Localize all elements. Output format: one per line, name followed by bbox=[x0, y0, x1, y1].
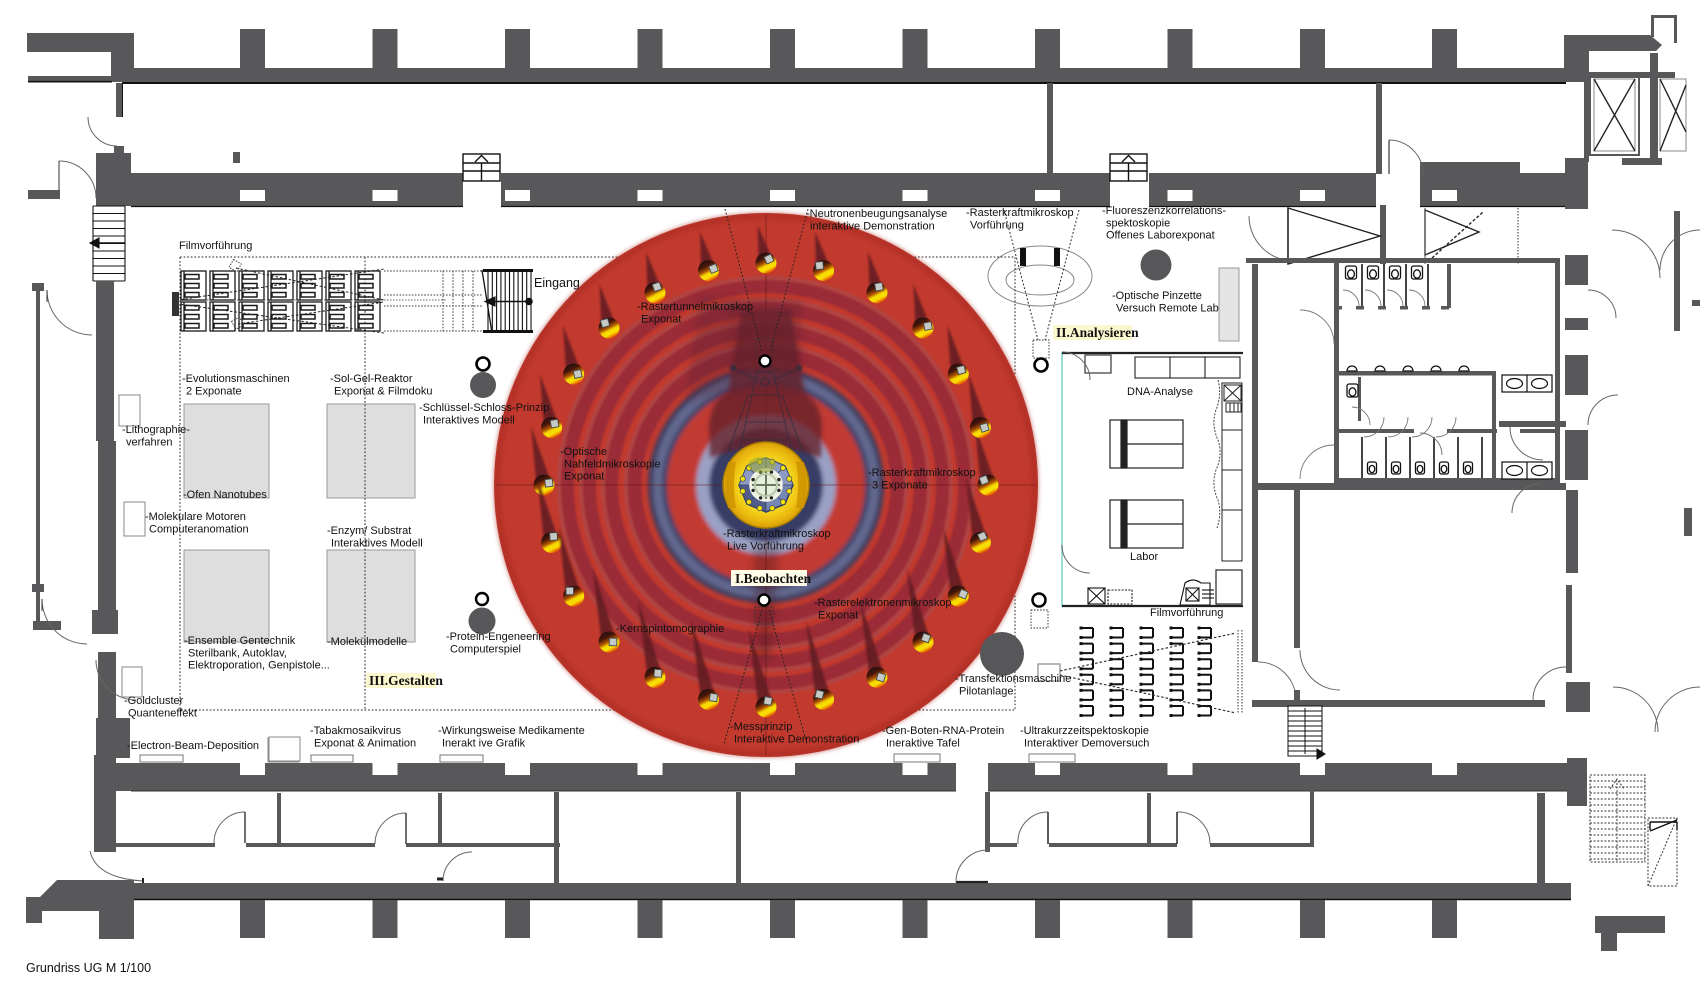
svg-text:Filmvorführung: Filmvorführung bbox=[1150, 607, 1223, 619]
svg-text:-UltrakurzzeitspektoskopieInte: -UltrakurzzeitspektoskopieInteraktiver D… bbox=[1020, 725, 1149, 749]
svg-text:-Ofen Nanotubes: -Ofen Nanotubes bbox=[183, 489, 267, 501]
svg-text:I.Beobachten: I.Beobachten bbox=[735, 571, 812, 586]
svg-text:Labor: Labor bbox=[1130, 551, 1158, 563]
svg-text:-Molekulare MotorenComputerano: -Molekulare MotorenComputeranomation bbox=[145, 511, 249, 535]
svg-text:-Neutronenbeugungsanalyseinter: -Neutronenbeugungsanalyseinteraktive Dem… bbox=[806, 208, 947, 232]
svg-text:II.Analysieren: II.Analysieren bbox=[1056, 325, 1139, 340]
svg-text:-Kernspintomographie: -Kernspintomographie bbox=[616, 623, 724, 635]
svg-text:-Enzym/ SubstratInteraktives M: -Enzym/ SubstratInteraktives Modell bbox=[327, 525, 423, 549]
svg-text:Eingang: Eingang bbox=[534, 276, 580, 290]
svg-text:-Electron-Beam-Deposition: -Electron-Beam-Deposition bbox=[127, 740, 259, 752]
svg-text:III.Gestalten: III.Gestalten bbox=[369, 673, 443, 688]
svg-text:DNA-Analyse: DNA-Analyse bbox=[1127, 386, 1193, 398]
svg-text:-TabakmosaikvirusExponat & Ani: -TabakmosaikvirusExponat & Animation bbox=[310, 725, 416, 749]
svg-text:Filmvorführung: Filmvorführung bbox=[179, 240, 252, 252]
svg-text:-Molekülmodelle: -Molekülmodelle bbox=[327, 636, 407, 648]
svg-text:Grundriss UG M 1/100: Grundriss UG M 1/100 bbox=[26, 961, 151, 975]
